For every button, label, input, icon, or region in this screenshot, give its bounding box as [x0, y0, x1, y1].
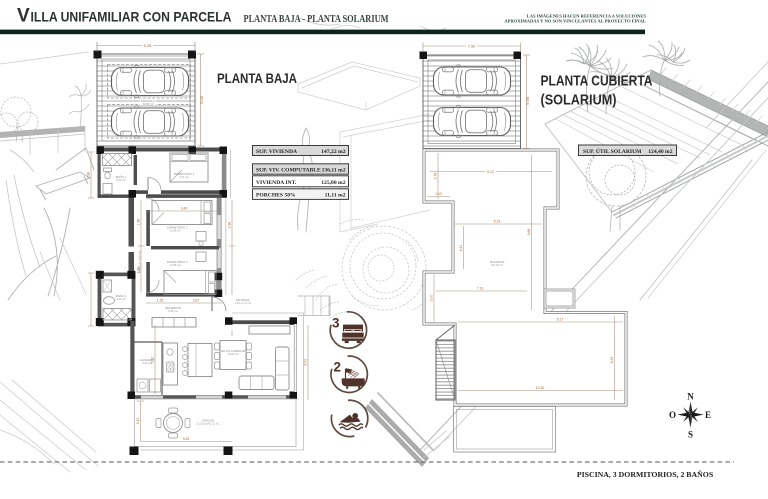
svg-text:9.08: 9.08: [199, 95, 204, 104]
svg-text:5.00: 5.00: [430, 295, 434, 302]
svg-text:0,84 x1,74 m2: 0,84 x1,74 m2: [235, 301, 252, 305]
svg-text:O: O: [669, 410, 676, 420]
svg-text:PLANTA BAJA: PLANTA BAJA: [217, 71, 297, 86]
svg-text:N: N: [687, 392, 694, 402]
svg-text:2.96: 2.96: [87, 172, 91, 179]
svg-text:22,22(x2)=11,11 m2: 22,22(x2)=11,11 m2: [197, 422, 220, 426]
svg-text:9,30 m2: 9,30 m2: [179, 175, 189, 179]
svg-text:APROXIMADAS Y NO SON VINCULANT: APROXIMADAS Y NO SON VINCULANTES AL PROY…: [504, 18, 646, 23]
svg-text:23,63 m2: 23,63 m2: [228, 352, 239, 356]
svg-text:1.00: 1.00: [435, 192, 441, 196]
svg-text:49,88 m2: 49,88 m2: [143, 102, 154, 106]
svg-text:6,00 m2: 6,00 m2: [116, 178, 126, 182]
svg-text:11,11 m2: 11,11 m2: [325, 193, 346, 199]
svg-text:4,40 m2: 4,40 m2: [116, 297, 126, 301]
svg-text:102,40 m2: 102,40 m2: [491, 263, 504, 267]
svg-text:3.43: 3.43: [181, 207, 188, 211]
svg-text:10.30: 10.30: [536, 386, 545, 390]
svg-text:11,88 m2: 11,88 m2: [170, 229, 181, 233]
svg-text:6,66 m2: 6,66 m2: [168, 309, 178, 313]
svg-text:125,00 m2: 125,00 m2: [321, 180, 345, 186]
svg-text:ILLA UNIFAMILIAR CON PARCELA: ILLA UNIFAMILIAR CON PARCELA: [31, 10, 232, 25]
svg-text:SUP. VIV. COMPUTABLE: SUP. VIV. COMPUTABLE: [256, 168, 321, 174]
svg-text:147,22 m2: 147,22 m2: [321, 149, 345, 155]
svg-text:9.43: 9.43: [183, 437, 190, 441]
svg-text:2.78: 2.78: [434, 173, 438, 180]
svg-text:2.87: 2.87: [193, 299, 200, 303]
svg-text:5.23: 5.23: [494, 220, 501, 224]
svg-text:124,40 m2: 124,40 m2: [648, 149, 672, 155]
svg-text:5.28: 5.28: [144, 43, 153, 48]
svg-text:3.47: 3.47: [136, 418, 140, 425]
svg-text:4.91: 4.91: [459, 245, 463, 252]
svg-text:S: S: [688, 430, 693, 440]
svg-text:8.29: 8.29: [610, 357, 614, 364]
svg-text:3: 3: [332, 316, 340, 331]
svg-text:7.13: 7.13: [477, 287, 484, 291]
svg-text:E: E: [705, 410, 711, 420]
svg-text:9.68: 9.68: [525, 96, 530, 105]
svg-text:(SOLARIUM): (SOLARIUM): [541, 93, 617, 109]
svg-text:SUP. VIVIENDA: SUP. VIVIENDA: [256, 149, 297, 155]
svg-text:5.90: 5.90: [151, 357, 155, 364]
svg-text:2.96: 2.96: [228, 222, 232, 229]
svg-text:1.98: 1.98: [137, 219, 141, 226]
svg-text:9.68: 9.68: [527, 229, 531, 236]
svg-text:5.17: 5.17: [557, 318, 564, 322]
svg-text:9.12: 9.12: [487, 170, 494, 174]
svg-text:7.30: 7.30: [468, 44, 477, 49]
svg-text:V: V: [17, 6, 30, 27]
svg-text:SUP. ÚTIL SOLARIUM: SUP. ÚTIL SOLARIUM: [583, 147, 642, 155]
svg-text:PLANTA CUBIERTA: PLANTA CUBIERTA: [541, 74, 653, 90]
svg-text:11,88 m2: 11,88 m2: [170, 263, 181, 267]
svg-text:PORCHES 50%: PORCHES 50%: [256, 193, 296, 199]
svg-text:2: 2: [334, 360, 342, 375]
svg-text:VIVIENDA INT.: VIVIENDA INT.: [256, 180, 297, 186]
svg-text:6.51: 6.51: [304, 359, 308, 366]
svg-text:PLANTA BAJA - PLANTA SOLARIUM: PLANTA BAJA - PLANTA SOLARIUM: [244, 14, 389, 25]
svg-text:1.98: 1.98: [137, 267, 141, 274]
svg-text:PISCINA, 3 DORMITORIOS, 2 BAÑO: PISCINA, 3 DORMITORIOS, 2 BAÑOS: [577, 470, 713, 479]
svg-text:136,11 m2: 136,11 m2: [322, 168, 346, 174]
svg-text:1.35: 1.35: [157, 299, 164, 303]
